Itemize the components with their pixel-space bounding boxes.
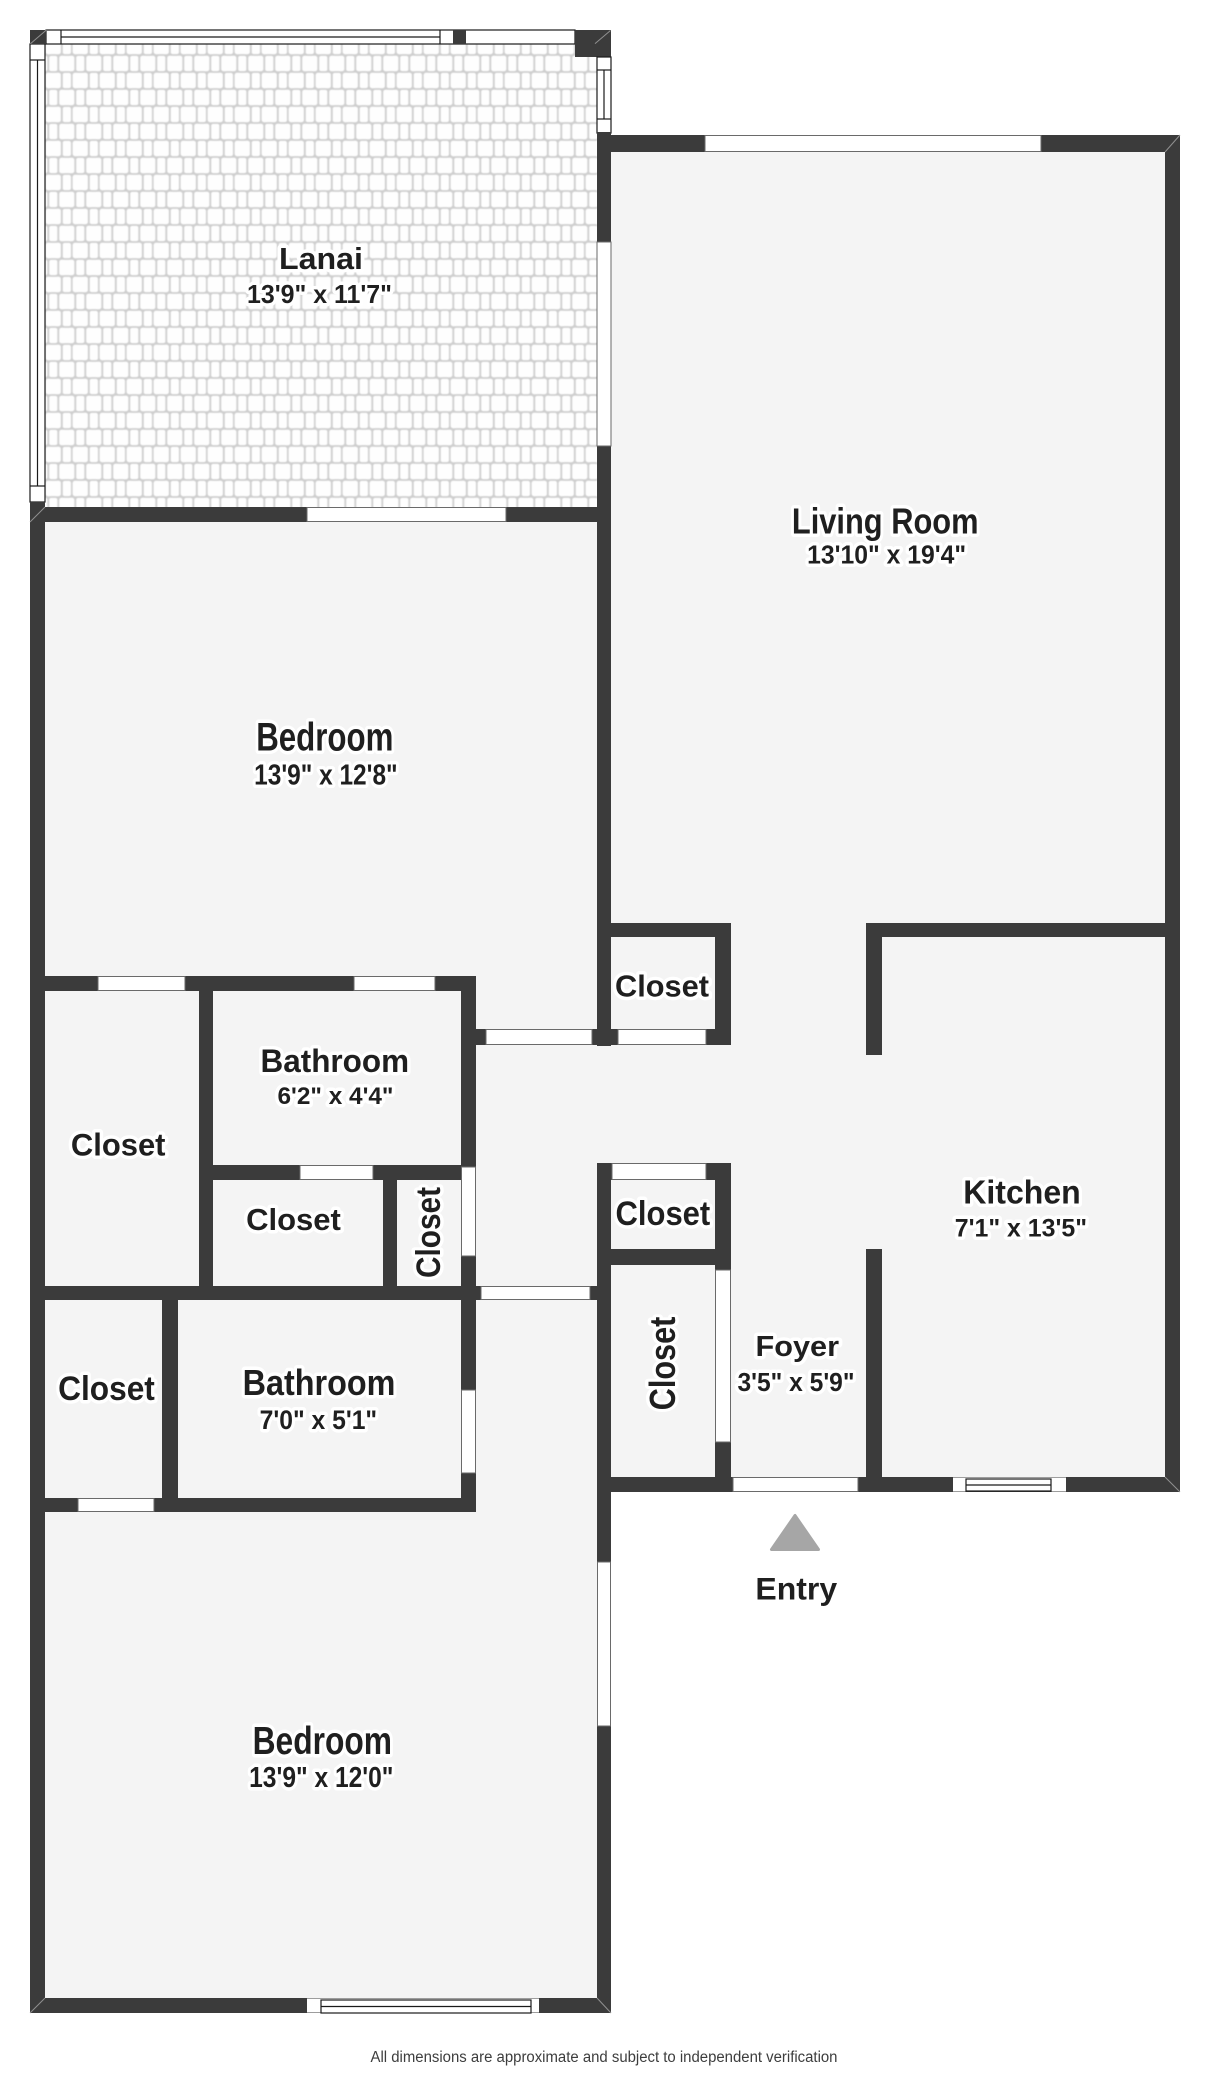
svg-text:Bathroom: Bathroom — [243, 1363, 396, 1403]
svg-text:13'9" x 11'7": 13'9" x 11'7" — [247, 279, 392, 309]
svg-text:Lanai: Lanai — [279, 242, 363, 276]
svg-text:Foyer: Foyer — [756, 1331, 840, 1363]
svg-text:13'9" x 12'0": 13'9" x 12'0" — [249, 1762, 393, 1794]
svg-text:Closet: Closet — [246, 1202, 341, 1237]
svg-text:Entry: Entry — [755, 1571, 837, 1607]
svg-text:Closet: Closet — [71, 1128, 166, 1163]
svg-text:3'5" x 5'9": 3'5" x 5'9" — [738, 1369, 855, 1397]
svg-text:6'2" x 4'4": 6'2" x 4'4" — [278, 1083, 394, 1110]
svg-text:13'9" x 12'8": 13'9" x 12'8" — [254, 760, 398, 792]
svg-text:Bedroom: Bedroom — [256, 716, 393, 760]
svg-text:Bedroom: Bedroom — [253, 1720, 392, 1763]
svg-text:Closet: Closet — [615, 969, 709, 1004]
svg-text:Kitchen: Kitchen — [963, 1174, 1081, 1212]
svg-text:7'0" x 5'1": 7'0" x 5'1" — [260, 1405, 378, 1435]
svg-text:Bathroom: Bathroom — [261, 1043, 410, 1079]
svg-text:13'10" x 19'4": 13'10" x 19'4" — [807, 539, 966, 569]
svg-text:Closet: Closet — [410, 1187, 448, 1278]
svg-text:Closet: Closet — [58, 1370, 155, 1408]
svg-text:Closet: Closet — [616, 1195, 711, 1233]
svg-text:Closet: Closet — [642, 1317, 683, 1411]
svg-text:Living Room: Living Room — [792, 500, 979, 541]
svg-text:7'1" x 13'5": 7'1" x 13'5" — [955, 1215, 1087, 1243]
svg-text:All dimensions are approximate: All dimensions are approximate and subje… — [371, 2049, 838, 2066]
